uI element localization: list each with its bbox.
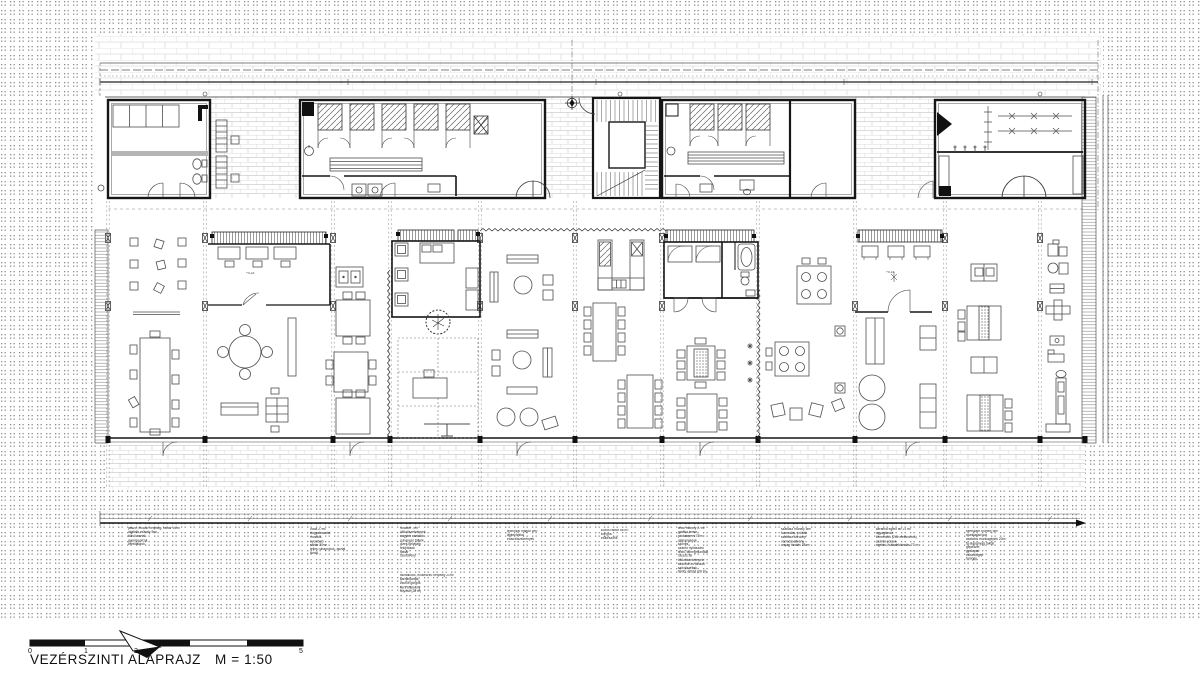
architectural-sheet: játszó, előadó helyiség, raktár 24m²digi… bbox=[0, 0, 1200, 675]
drawing-title: VEZÉRSZINTI ALAPRAJZM = 1:50 bbox=[30, 652, 273, 667]
scale-bar bbox=[30, 640, 303, 646]
scale-text: M = 1:50 bbox=[215, 652, 273, 667]
top-brick-band bbox=[95, 34, 1101, 95]
terrace bbox=[108, 445, 1085, 489]
title-text: VEZÉRSZINTI ALAPRAJZ bbox=[30, 652, 201, 667]
floor-plan-drawing bbox=[0, 0, 1200, 675]
